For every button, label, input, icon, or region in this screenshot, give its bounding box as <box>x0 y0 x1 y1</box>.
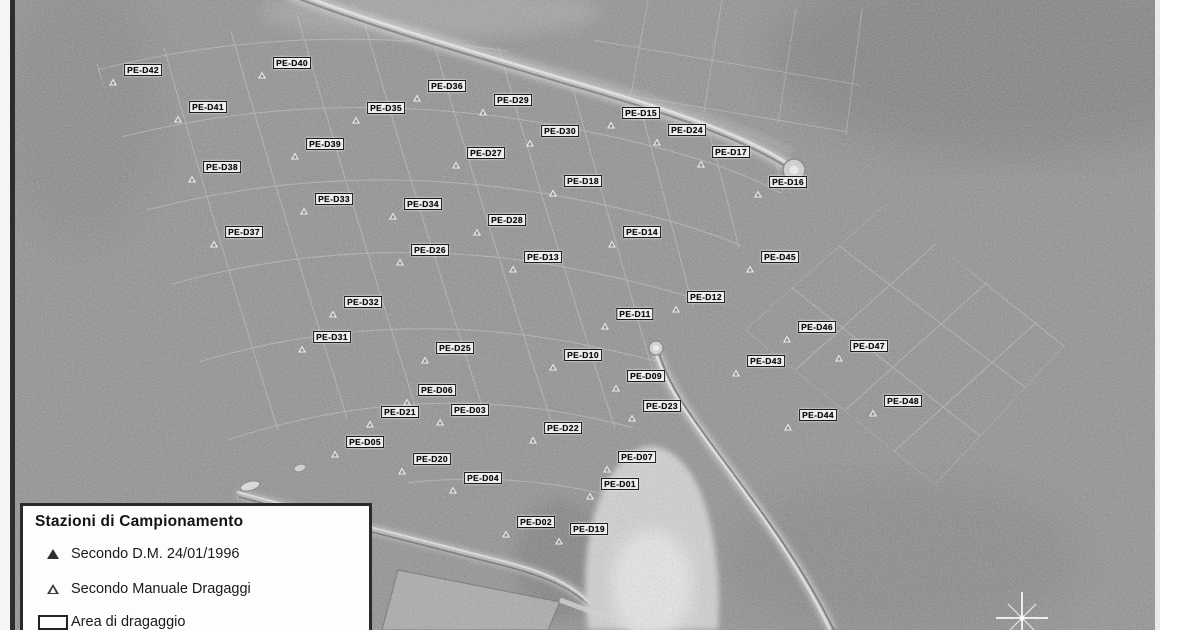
station-label-pe-d10: PE-D10 <box>564 349 602 361</box>
sampling-station-triangle-icon <box>526 140 534 147</box>
sampling-station-triangle-icon <box>109 79 117 86</box>
station-label-pe-d37: PE-D37 <box>225 226 263 238</box>
station-label-pe-d48: PE-D48 <box>884 395 922 407</box>
sampling-station-triangle-icon <box>436 419 444 426</box>
sampling-station-triangle-icon <box>754 191 762 198</box>
station-label-pe-d32: PE-D32 <box>344 296 382 308</box>
station-label-pe-d03: PE-D03 <box>451 404 489 416</box>
station-label-pe-d19: PE-D19 <box>570 523 608 535</box>
station-label-pe-d15: PE-D15 <box>622 107 660 119</box>
station-label-pe-d38: PE-D38 <box>203 161 241 173</box>
station-label-pe-d05: PE-D05 <box>346 436 384 448</box>
station-label-pe-d29: PE-D29 <box>494 94 532 106</box>
sampling-station-triangle-icon <box>473 229 481 236</box>
sampling-station-triangle-icon <box>601 323 609 330</box>
station-label-pe-d41: PE-D41 <box>189 101 227 113</box>
legend-item-label: Secondo D.M. 24/01/1996 <box>71 546 239 562</box>
station-label-pe-d14: PE-D14 <box>623 226 661 238</box>
legend-item-label: Area di dragaggio <box>71 614 185 630</box>
sampling-station-triangle-icon <box>612 385 620 392</box>
sampling-station-triangle-icon <box>210 241 218 248</box>
sampling-station-triangle-icon <box>835 355 843 362</box>
station-label-pe-d16: PE-D16 <box>769 176 807 188</box>
sampling-station-triangle-icon <box>396 259 404 266</box>
sampling-station-triangle-icon <box>403 399 411 406</box>
legend-item-manuale-dragaggi: Secondo Manuale Dragaggi <box>35 581 357 597</box>
station-label-pe-d04: PE-D04 <box>464 472 502 484</box>
sampling-station-triangle-icon <box>413 95 421 102</box>
station-label-pe-d20: PE-D20 <box>413 453 451 465</box>
station-label-pe-d23: PE-D23 <box>643 400 681 412</box>
station-label-pe-d21: PE-D21 <box>381 406 419 418</box>
station-label-pe-d11: PE-D11 <box>616 308 653 320</box>
sampling-station-triangle-icon <box>449 487 457 494</box>
station-label-pe-d06: PE-D06 <box>418 384 456 396</box>
sampling-station-triangle-icon <box>452 162 460 169</box>
station-label-pe-d17: PE-D17 <box>712 146 750 158</box>
station-label-pe-d36: PE-D36 <box>428 80 466 92</box>
sampling-station-triangle-icon <box>697 161 705 168</box>
station-label-pe-d46: PE-D46 <box>798 321 836 333</box>
sampling-station-triangle-icon <box>188 176 196 183</box>
sampling-station-triangle-icon <box>389 213 397 220</box>
station-label-pe-d44: PE-D44 <box>799 409 837 421</box>
dredging-area-rectangle-icon <box>35 615 71 630</box>
station-label-pe-d42: PE-D42 <box>124 64 162 76</box>
station-label-pe-d39: PE-D39 <box>306 138 344 150</box>
sampling-station-triangle-icon <box>746 266 754 273</box>
sampling-station-triangle-icon <box>479 109 487 116</box>
station-label-pe-d47: PE-D47 <box>850 340 888 352</box>
station-label-pe-d07: PE-D07 <box>618 451 656 463</box>
station-label-pe-d43: PE-D43 <box>747 355 785 367</box>
sampling-station-triangle-icon <box>732 370 740 377</box>
sampling-station-triangle-icon <box>502 531 510 538</box>
sampling-station-triangle-icon <box>329 311 337 318</box>
station-label-pe-d27: PE-D27 <box>467 147 505 159</box>
sampling-station-triangle-icon <box>672 306 680 313</box>
sampling-station-triangle-icon <box>586 493 594 500</box>
sampling-station-triangle-icon <box>291 153 299 160</box>
sampling-station-triangle-icon <box>298 346 306 353</box>
sampling-station-triangle-icon <box>300 208 308 215</box>
station-label-pe-d22: PE-D22 <box>544 422 582 434</box>
station-label-pe-d18: PE-D18 <box>564 175 602 187</box>
sampling-station-triangle-icon <box>603 466 611 473</box>
sampling-station-triangle-icon <box>366 421 374 428</box>
sampling-station-triangle-icon <box>653 139 661 146</box>
station-label-pe-d13: PE-D13 <box>524 251 562 263</box>
station-label-pe-d01: PE-D01 <box>601 478 639 490</box>
filled-triangle-icon <box>35 549 71 559</box>
sampling-station-triangle-icon <box>784 424 792 431</box>
sampling-station-triangle-icon <box>607 122 615 129</box>
station-label-pe-d02: PE-D02 <box>517 516 555 528</box>
station-label-pe-d24: PE-D24 <box>668 124 706 136</box>
harbour-sampling-map: PE-D42PE-D40PE-D41PE-D36PE-D35PE-D29PE-D… <box>0 0 1200 630</box>
sampling-station-triangle-icon <box>783 336 791 343</box>
sampling-station-triangle-icon <box>331 451 339 458</box>
sampling-station-triangle-icon <box>608 241 616 248</box>
station-label-pe-d26: PE-D26 <box>411 244 449 256</box>
legend-title: Stazioni di Campionamento <box>35 513 357 531</box>
legend: Stazioni di Campionamento Secondo D.M. 2… <box>20 503 372 630</box>
legend-item-area-dragaggio: Area di dragaggio <box>35 614 357 630</box>
open-triangle-icon <box>35 584 71 594</box>
station-label-pe-d09: PE-D09 <box>627 370 665 382</box>
station-label-pe-d40: PE-D40 <box>273 57 311 69</box>
sampling-station-triangle-icon <box>628 415 636 422</box>
station-label-pe-d25: PE-D25 <box>436 342 474 354</box>
station-label-pe-d45: PE-D45 <box>761 251 799 263</box>
sampling-station-triangle-icon <box>529 437 537 444</box>
sampling-station-triangle-icon <box>549 190 557 197</box>
legend-item-label: Secondo Manuale Dragaggi <box>71 581 251 597</box>
sampling-station-triangle-icon <box>174 116 182 123</box>
sampling-station-triangle-icon <box>549 364 557 371</box>
sampling-station-triangle-icon <box>555 538 563 545</box>
station-label-pe-d35: PE-D35 <box>367 102 405 114</box>
station-label-pe-d34: PE-D34 <box>404 198 442 210</box>
legend-item-dm-1996: Secondo D.M. 24/01/1996 <box>35 546 357 562</box>
station-label-pe-d31: PE-D31 <box>313 331 351 343</box>
station-label-pe-d33: PE-D33 <box>315 193 353 205</box>
station-label-pe-d30: PE-D30 <box>541 125 579 137</box>
station-label-pe-d28: PE-D28 <box>488 214 526 226</box>
sampling-station-triangle-icon <box>421 357 429 364</box>
sampling-station-triangle-icon <box>869 410 877 417</box>
sampling-station-triangle-icon <box>258 72 266 79</box>
sampling-station-triangle-icon <box>509 266 517 273</box>
sampling-station-triangle-icon <box>398 468 406 475</box>
station-label-pe-d12: PE-D12 <box>687 291 725 303</box>
sampling-station-triangle-icon <box>352 117 360 124</box>
